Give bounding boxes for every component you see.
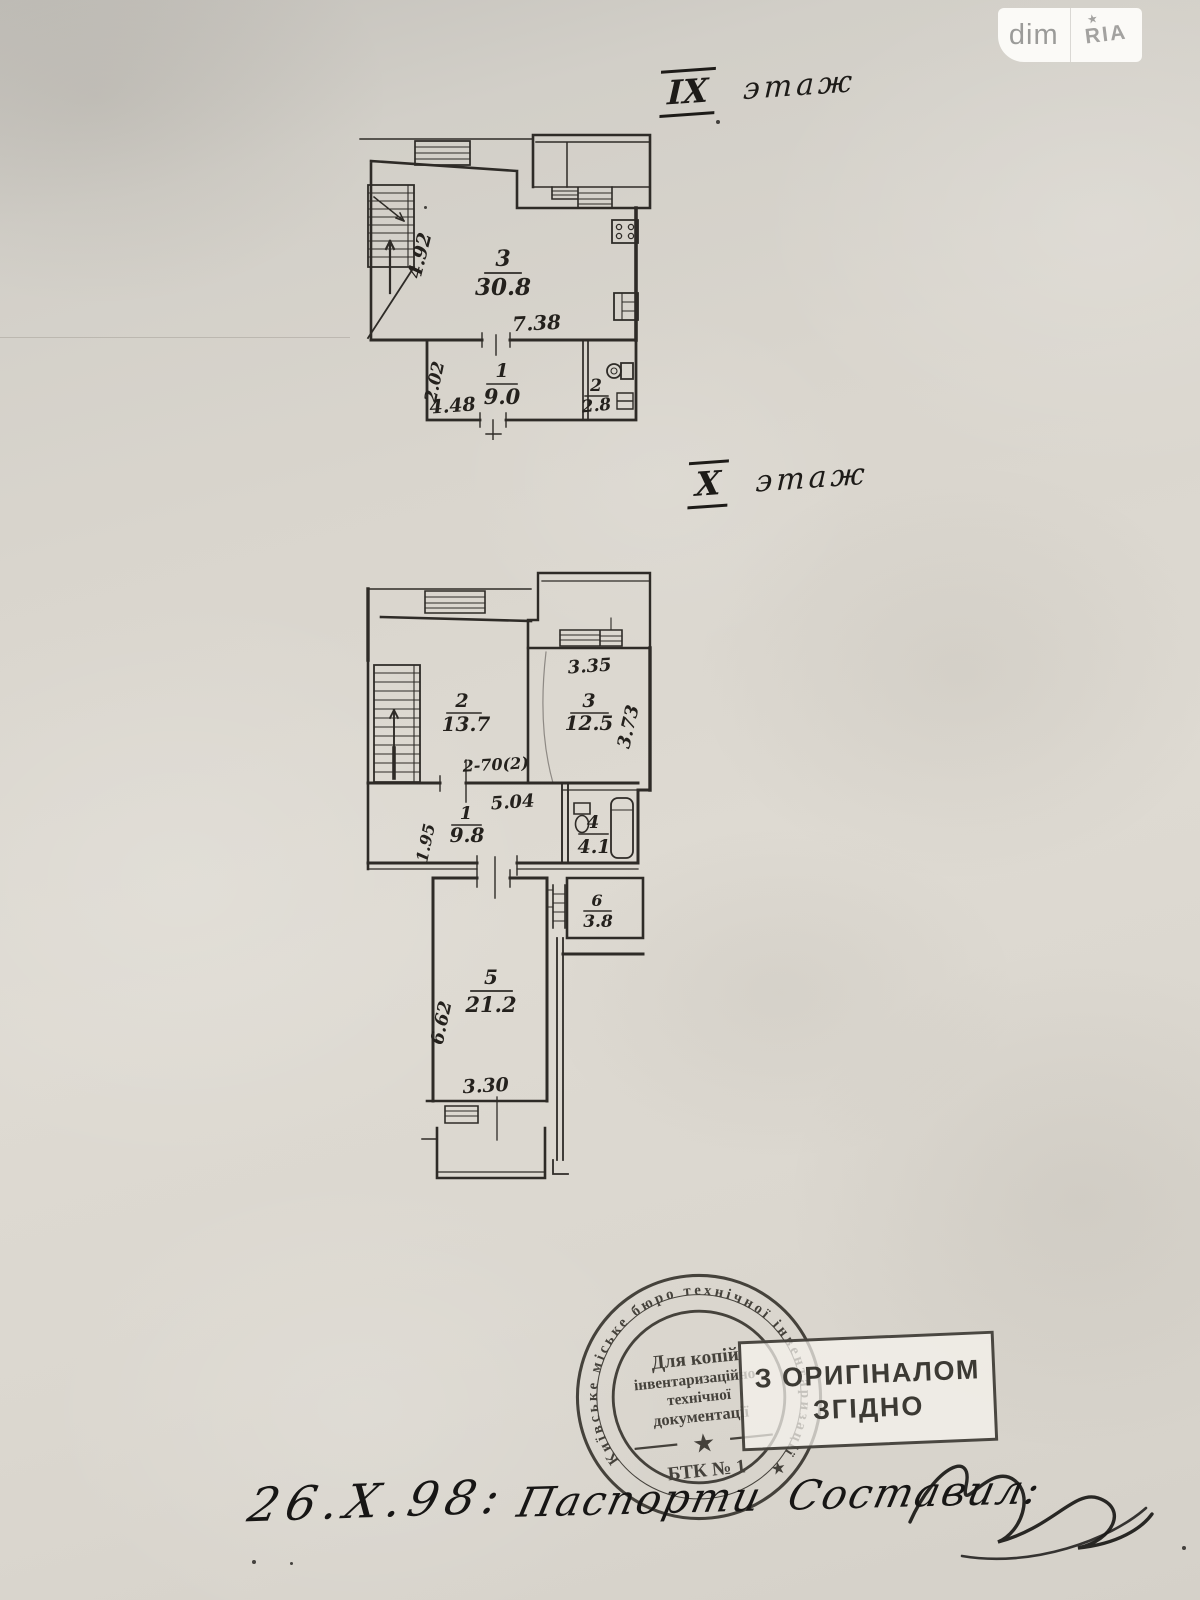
room-area: 13.7 bbox=[442, 712, 491, 736]
dimension-label: 4.48 bbox=[429, 393, 477, 418]
rect-stamp-line2: ЗГІДНО bbox=[812, 1390, 925, 1426]
watermark-badge: dim ★ RIA bbox=[998, 8, 1142, 62]
room-number: 3 bbox=[582, 690, 595, 712]
room-area: 12.5 bbox=[565, 711, 614, 735]
signature-flourish bbox=[902, 1436, 1162, 1571]
room-area: 2.8 bbox=[580, 395, 613, 418]
floor-ix-word: этаж bbox=[742, 64, 856, 107]
dimension-label: 4.92 bbox=[404, 230, 437, 280]
floor-plan-ix: 3 30.8 1 9.0 2 2.8 7.38 4.92 2.02 4.48 bbox=[340, 125, 660, 440]
room-area: 9.0 bbox=[484, 384, 521, 409]
dimension-label: 3.30 bbox=[462, 1074, 509, 1098]
floor-title-x: Xэтаж bbox=[687, 450, 869, 510]
room-area: 21.2 bbox=[464, 992, 516, 1017]
room-number: 3 bbox=[495, 246, 510, 272]
ink-speck bbox=[716, 120, 720, 124]
ink-speck bbox=[252, 1560, 256, 1564]
bay-windows bbox=[552, 187, 612, 208]
dim-logo-text: dim bbox=[1009, 19, 1059, 52]
room-number: 4 bbox=[587, 812, 600, 833]
room-number: 6 bbox=[591, 891, 602, 910]
rect-stamp-line1: З ОРИГІНАЛОМ bbox=[754, 1354, 981, 1394]
dimension-label: 5.04 bbox=[490, 791, 535, 815]
star-icon: ★ bbox=[693, 1430, 716, 1457]
watermark-ria: ★ RIA bbox=[1070, 8, 1143, 62]
watermark-dim: dim bbox=[998, 8, 1070, 62]
ink-speck bbox=[290, 1562, 293, 1565]
window bbox=[425, 591, 485, 613]
ink-speck bbox=[424, 206, 427, 209]
dimension-label: 7.38 bbox=[512, 310, 562, 337]
bathtub-icon bbox=[611, 798, 633, 858]
dimension-label: 1.95 bbox=[412, 822, 439, 864]
floor-ix-numeral: IX bbox=[659, 67, 716, 118]
handwritten-date: 26.X.98: bbox=[243, 1470, 512, 1534]
dimension-label: 6.62 bbox=[427, 999, 457, 1046]
room-area: 4.1 bbox=[577, 836, 610, 858]
dimension-label: 2-70(2) bbox=[461, 753, 529, 775]
staircase bbox=[374, 665, 420, 782]
paper-crease bbox=[0, 337, 350, 338]
dimension-label: 3.35 bbox=[567, 655, 612, 679]
room-area: 3.8 bbox=[583, 912, 613, 932]
bathroom-walls bbox=[562, 783, 568, 863]
room-area: 30.8 bbox=[475, 274, 531, 301]
room-number: 1 bbox=[460, 803, 473, 824]
stove-icon bbox=[612, 220, 638, 243]
floor-x-word: этаж bbox=[755, 457, 869, 500]
ria-logo-text: RIA bbox=[1084, 21, 1129, 50]
floor-x-numeral: X bbox=[687, 459, 728, 509]
window bbox=[415, 141, 470, 165]
scanned-document-page: dim ★ RIA IXэтаж Xэтаж bbox=[0, 0, 1200, 1600]
floor-plan-x: 2 13.7 3 12.5 1 9.8 4 4.1 5 21.2 6 3.8 3… bbox=[350, 560, 670, 1185]
ink-speck bbox=[1182, 1546, 1186, 1550]
room-number: 5 bbox=[484, 965, 498, 989]
room-number: 1 bbox=[495, 360, 508, 382]
dimension-label: 3.73 bbox=[613, 703, 643, 750]
rect-stamp: З ОРИГІНАЛОМ ЗГІДНО bbox=[738, 1331, 998, 1452]
bay-windows bbox=[560, 618, 622, 646]
balcony bbox=[422, 1128, 545, 1178]
floor-title-ix: IXэтаж bbox=[659, 57, 856, 118]
room-area: 9.8 bbox=[450, 823, 485, 847]
room-number: 2 bbox=[454, 690, 468, 712]
room-number: 2 bbox=[589, 376, 602, 396]
